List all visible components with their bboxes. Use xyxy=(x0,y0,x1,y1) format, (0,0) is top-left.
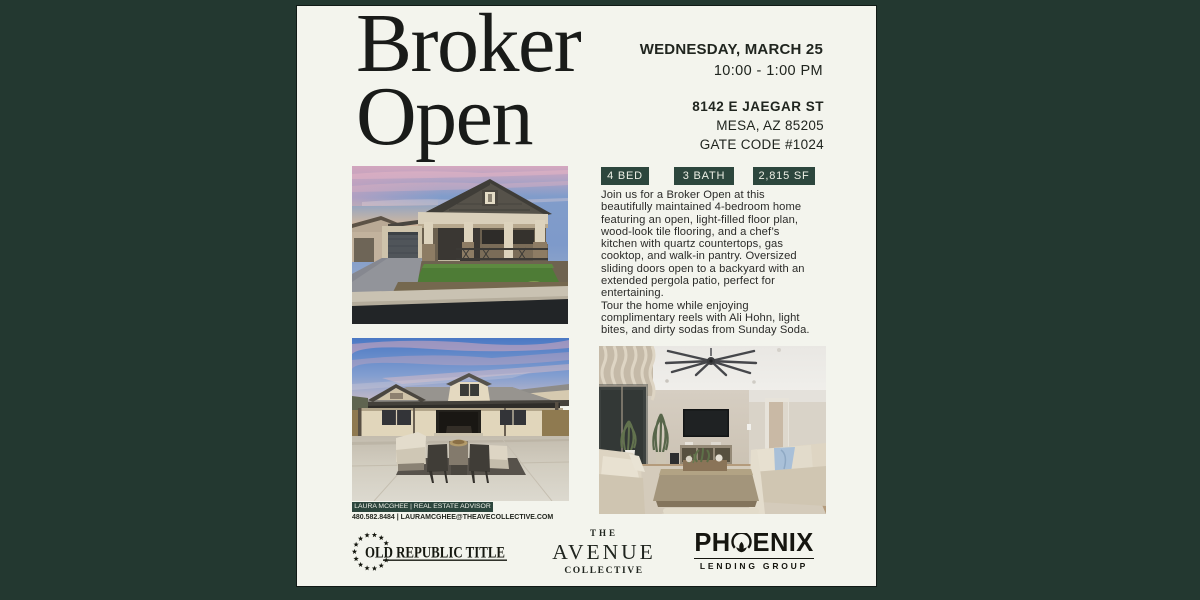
svg-text:OLD REPUBLIC TITLE: OLD REPUBLIC TITLE xyxy=(365,545,505,562)
